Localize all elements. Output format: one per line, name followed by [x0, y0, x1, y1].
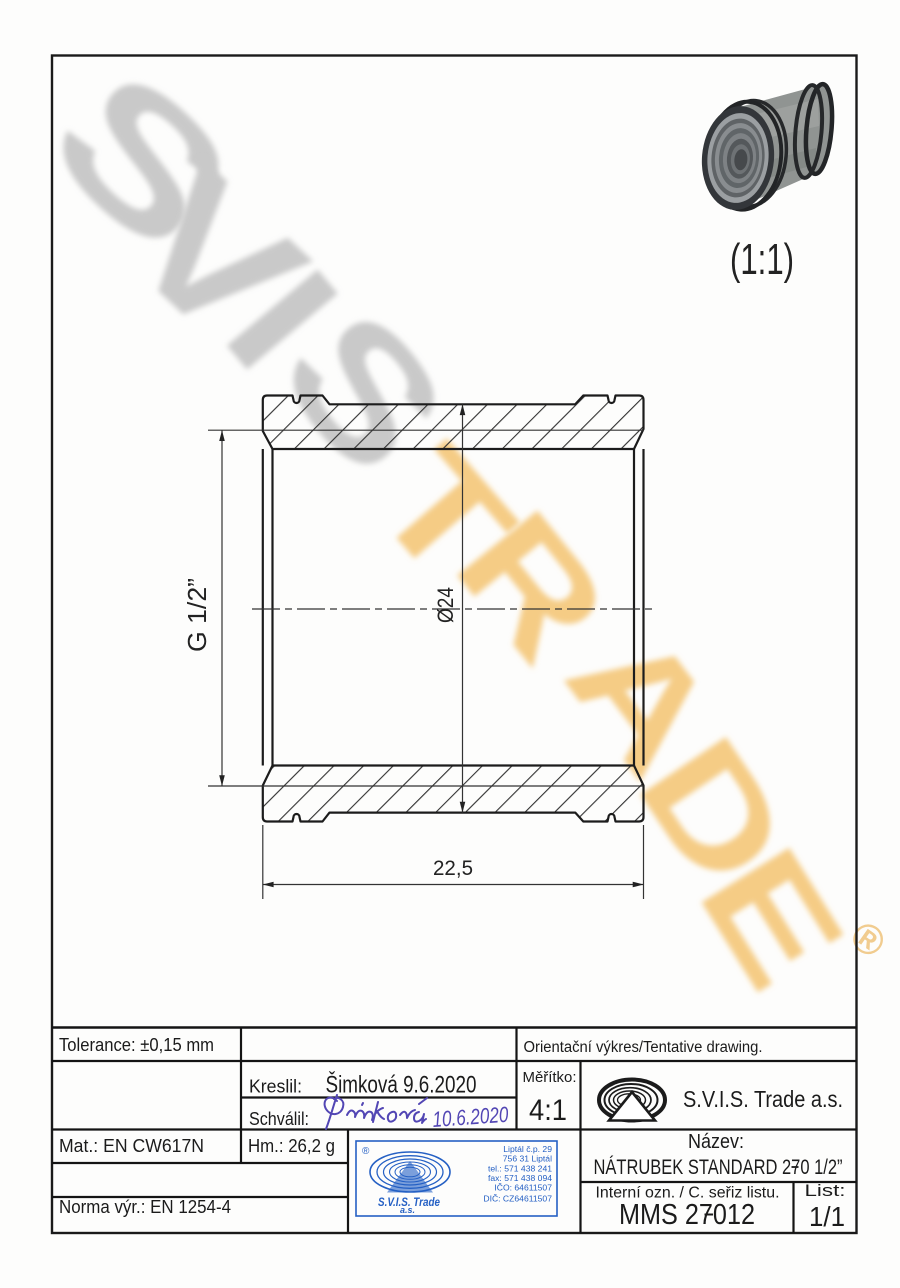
svg-text:Orientační výkres/Tentative dr: Orientační výkres/Tentative drawing. — [524, 1039, 763, 1056]
svg-text:G 1/2”: G 1/2” — [182, 578, 212, 652]
svg-text:Schválil:: Schválil: — [249, 1109, 309, 1129]
svg-text:1/1: 1/1 — [809, 1201, 845, 1232]
svg-text:S.V.I.S. Trade a.s.: S.V.I.S. Trade a.s. — [683, 1086, 843, 1112]
svg-text:NÁTRUBEK STANDARD 270 1/2”: NÁTRUBEK STANDARD 270 1/2” — [594, 1156, 843, 1179]
svg-text:IČO: 64611507: IČO: 64611507 — [494, 1183, 552, 1193]
svg-text:Mat.: EN CW617N: Mat.: EN CW617N — [59, 1136, 204, 1156]
svg-text:fax: 571 438 094: fax: 571 438 094 — [488, 1173, 552, 1183]
svg-text:MMS 27012: MMS 27012 — [619, 1199, 755, 1231]
svg-text:Hm.: 26,2 g: Hm.: 26,2 g — [248, 1136, 335, 1156]
svg-text:22,5: 22,5 — [433, 857, 473, 880]
svg-text:Kreslil:: Kreslil: — [249, 1077, 302, 1097]
svg-text:(1:1): (1:1) — [730, 235, 794, 284]
svg-text:Norma výr.: EN 1254-4: Norma výr.: EN 1254-4 — [59, 1197, 231, 1217]
svg-text:Ø24: Ø24 — [433, 587, 458, 623]
svg-text:DIČ: CZ64611507: DIČ: CZ64611507 — [483, 1193, 552, 1203]
svg-text:10.6.2020: 10.6.2020 — [432, 1102, 510, 1132]
svg-text:Liptál č.p. 29: Liptál č.p. 29 — [503, 1144, 552, 1154]
svg-text:®: ® — [362, 1146, 370, 1157]
svg-text:Měřítko:: Měřítko: — [523, 1070, 577, 1086]
svg-text:List:: List: — [805, 1181, 846, 1200]
svg-text:tel.: 571 438 241: tel.: 571 438 241 — [488, 1163, 552, 1173]
svg-text:Šimková 9.6.2020: Šimková 9.6.2020 — [326, 1071, 477, 1099]
svg-text:a.s.: a.s. — [400, 1205, 415, 1215]
svg-text:4:1: 4:1 — [529, 1094, 567, 1127]
svg-text:Název:: Název: — [688, 1131, 744, 1153]
svg-text:Tolerance: ±0,15 mm: Tolerance: ±0,15 mm — [59, 1035, 214, 1055]
svg-text:756 31 Liptál: 756 31 Liptál — [503, 1154, 552, 1164]
